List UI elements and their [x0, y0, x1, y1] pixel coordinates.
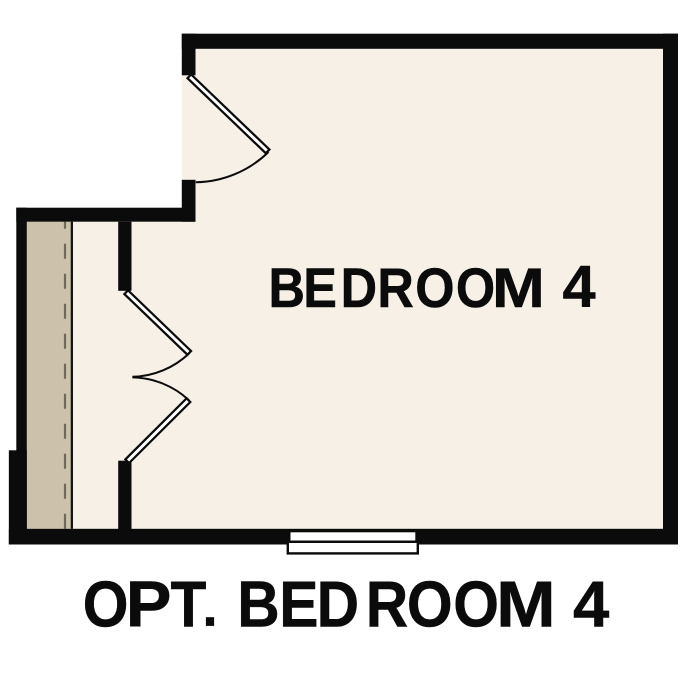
svg-text:BEDROO: BEDROO: [268, 258, 495, 320]
svg-text:4: 4: [573, 567, 609, 640]
svg-text:4: 4: [563, 253, 596, 320]
svg-text:M: M: [496, 567, 556, 640]
svg-text:P: P: [126, 568, 172, 641]
svg-text:M: M: [492, 256, 545, 319]
